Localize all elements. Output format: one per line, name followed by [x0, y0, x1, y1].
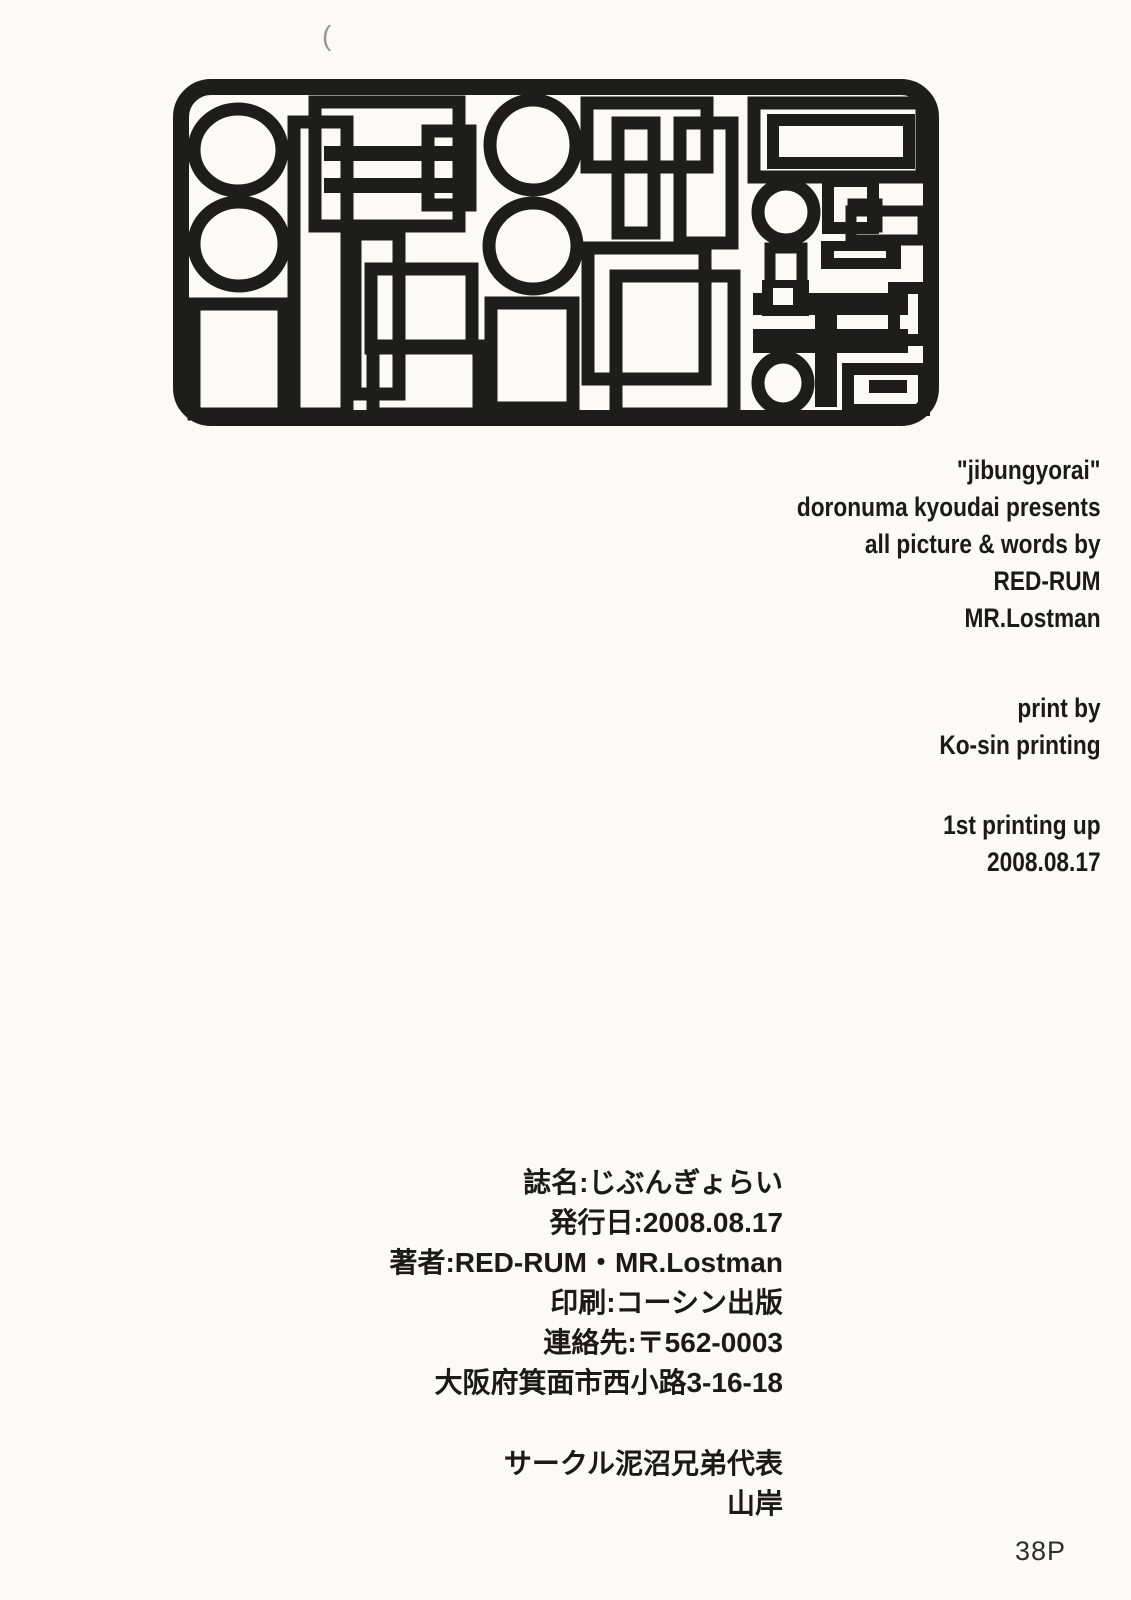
credit-line-byline: all picture & words by — [797, 526, 1101, 563]
credit-line-title: "jibungyorai" — [797, 452, 1101, 489]
credit-line-printer: Ko-sin printing — [797, 727, 1101, 764]
doronuma-logo — [172, 78, 940, 427]
credit-line-presents: doronuma kyoudai presents — [797, 489, 1101, 526]
colophon-line-address: 大阪府箕面市西小路3-16-18 — [389, 1363, 783, 1403]
credit-line-author-1: RED-RUM — [797, 563, 1101, 600]
credit-line-date: 2008.08.17 — [797, 844, 1101, 881]
colophon-line-contact-postal: 連絡先:〒562-0003 — [389, 1323, 783, 1363]
english-credits-block: "jibungyorai" doronuma kyoudai presents … — [739, 452, 1101, 881]
credit-line-print-by: print by — [797, 690, 1101, 727]
colophon-line-authors: 著者:RED-RUM・MR.Lostman — [389, 1243, 783, 1283]
page-number: 38P — [1015, 1536, 1066, 1567]
scan-artifact-mark: ( — [322, 20, 331, 52]
colophon-line-representative: 山岸 — [389, 1484, 783, 1524]
doronuma-logo-graphic — [172, 78, 940, 427]
scanned-colophon-page: ( — [0, 0, 1131, 1600]
japanese-colophon-block: 誌名:じぶんぎょらい 発行日:2008.08.17 著者:RED-RUM・MR.… — [389, 1163, 783, 1524]
credit-line-edition: 1st printing up — [797, 807, 1101, 844]
colophon-line-title: 誌名:じぶんぎょらい — [389, 1163, 783, 1203]
colophon-line-issue-date: 発行日:2008.08.17 — [389, 1203, 783, 1243]
colophon-line-circle: サークル泥沼兄弟代表 — [389, 1444, 783, 1484]
credit-line-author-2: MR.Lostman — [797, 600, 1101, 637]
colophon-line-printer: 印刷:コーシン出版 — [389, 1283, 783, 1323]
